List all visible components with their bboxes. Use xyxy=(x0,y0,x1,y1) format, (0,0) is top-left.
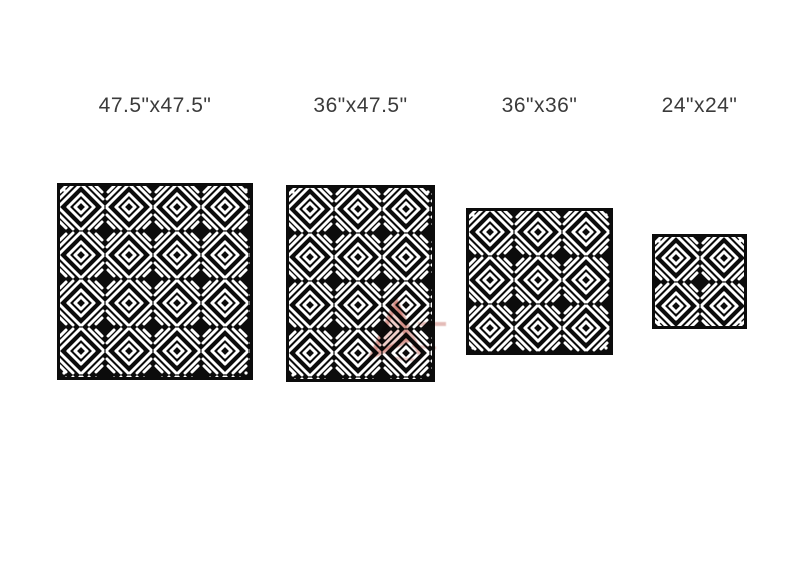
figure-47x47: 47.5"x47.5" xyxy=(57,94,253,384)
size-label: 36"x36" xyxy=(466,94,613,118)
decorative-screen-panel-36x47 xyxy=(286,185,435,382)
decorative-screen-panel-47x47 xyxy=(57,183,253,380)
figure-24x24: 24"x24" xyxy=(652,94,747,330)
figure-36x36: 36"x36" xyxy=(466,94,613,356)
size-label: 36"x47.5" xyxy=(286,94,435,118)
decorative-screen-panel-36x36 xyxy=(466,208,613,355)
figure-36x47: 36"x47.5" xyxy=(286,94,435,386)
size-label: 47.5"x47.5" xyxy=(57,94,253,118)
size-label: 24"x24" xyxy=(652,94,747,118)
product-size-comparison-image: 47.5"x47.5" 36"x47.5" 36"x36" xyxy=(0,0,800,566)
decorative-screen-panel-24x24 xyxy=(652,234,747,329)
